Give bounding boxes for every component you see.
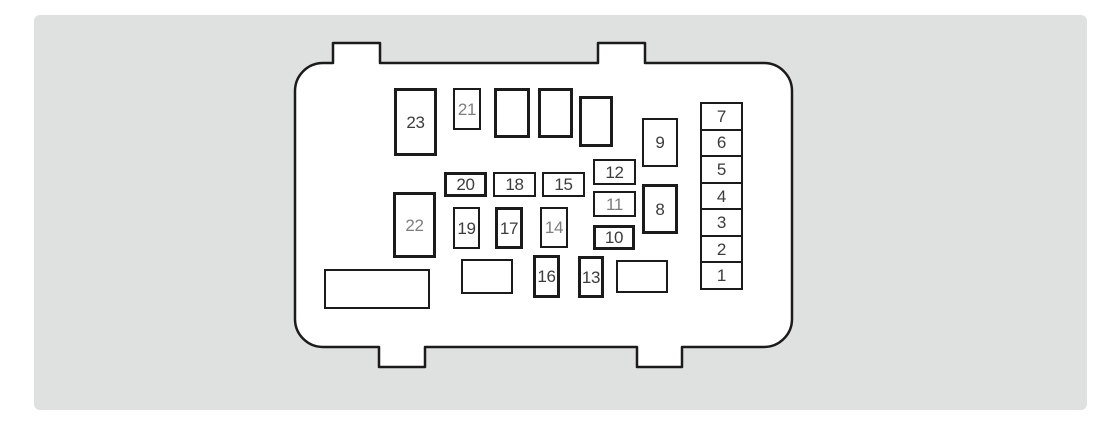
fuse-11: 11	[593, 191, 636, 217]
fuse-9: 9	[642, 118, 678, 167]
fuse-label: 13	[582, 269, 600, 286]
fuse-label: 6	[717, 134, 726, 151]
fuse-blank	[461, 259, 513, 294]
fuse-label: 18	[505, 176, 523, 193]
fuse-14: 14	[540, 207, 568, 248]
fuse-cell-6: 6	[702, 129, 741, 156]
fuse-label: 21	[458, 101, 476, 118]
fuse-label: 20	[456, 176, 474, 193]
fuse-label: 12	[605, 164, 623, 181]
fuse-20: 20	[444, 172, 487, 197]
fuse-22: 22	[393, 192, 436, 258]
fuse-label: 11	[606, 196, 623, 213]
fuse-8: 8	[642, 184, 678, 234]
fuse-cell-3: 3	[702, 208, 741, 235]
fuse-blank	[579, 96, 613, 147]
fuse-label: 14	[545, 219, 563, 236]
fuse-label: 3	[717, 214, 726, 231]
fuse-23: 23	[394, 88, 437, 156]
fuse-blank	[494, 88, 530, 138]
fuse-13: 13	[578, 256, 604, 298]
fuse-box-diagram: 2321912201815811221917141016137654321	[0, 0, 1107, 433]
fuse-label: 17	[500, 220, 518, 237]
fuse-label: 1	[717, 267, 726, 284]
fuse-label: 5	[717, 161, 726, 178]
fuse-label: 8	[655, 201, 664, 218]
fuse-column: 7654321	[700, 102, 743, 290]
fuse-blank	[324, 269, 430, 309]
fuse-label: 7	[717, 108, 726, 125]
fuse-10: 10	[593, 225, 635, 250]
fuse-label: 2	[717, 241, 726, 258]
fuse-label: 23	[406, 114, 424, 131]
fuse-label: 4	[717, 188, 726, 205]
fuse-15: 15	[542, 172, 585, 197]
fuse-blank	[538, 88, 573, 138]
fuse-label: 9	[655, 134, 664, 151]
fuse-label: 15	[554, 176, 572, 193]
fuse-cell-4: 4	[702, 182, 741, 209]
fuse-12: 12	[593, 159, 636, 185]
fuse-cell-7: 7	[702, 104, 741, 129]
fuse-label: 22	[405, 217, 423, 234]
fuse-label: 16	[537, 268, 555, 285]
fuse-16: 16	[533, 255, 560, 298]
fuse-cell-2: 2	[702, 235, 741, 262]
fuse-cell-1: 1	[702, 261, 741, 288]
fuse-label: 19	[457, 220, 475, 237]
fuse-18: 18	[493, 172, 536, 197]
fuse-19: 19	[453, 207, 480, 249]
fuse-label: 10	[605, 229, 623, 246]
fuse-blank	[616, 260, 668, 293]
fuse-17: 17	[495, 207, 523, 249]
fuse-21: 21	[453, 88, 481, 130]
fuse-cell-5: 5	[702, 155, 741, 182]
